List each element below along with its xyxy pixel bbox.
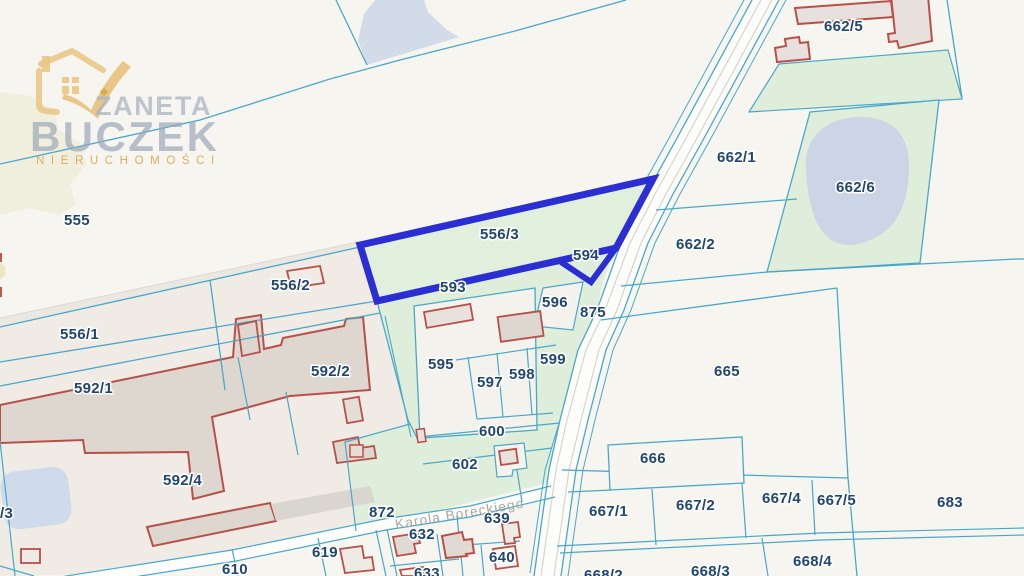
svg-text:/3: /3 [0, 505, 13, 522]
svg-text:667/5: 667/5 [817, 492, 856, 509]
svg-text:NIERUCHOMOŚCI: NIERUCHOMOŚCI [36, 154, 221, 167]
svg-text:602: 602 [452, 456, 478, 473]
svg-text:597: 597 [477, 374, 503, 391]
svg-text:667/2: 667/2 [676, 497, 715, 514]
svg-text:600: 600 [479, 423, 505, 440]
svg-text:875: 875 [580, 304, 606, 321]
svg-text:668/3: 668/3 [691, 563, 730, 576]
svg-text:598: 598 [509, 366, 535, 383]
svg-text:668/4: 668/4 [793, 553, 832, 570]
svg-text:668/2: 668/2 [584, 567, 623, 576]
svg-text:665: 665 [714, 363, 740, 380]
svg-text:BUCZEK: BUCZEK [30, 113, 219, 160]
svg-text:556/2: 556/2 [271, 277, 310, 294]
svg-text:599: 599 [540, 351, 566, 368]
svg-text:555: 555 [64, 212, 90, 229]
svg-text:662/5: 662/5 [824, 18, 863, 35]
svg-text:683: 683 [937, 494, 963, 511]
svg-text:592/2: 592/2 [311, 363, 350, 380]
svg-text:610: 610 [222, 561, 248, 576]
svg-text:872: 872 [369, 504, 395, 521]
svg-text:640: 640 [489, 549, 515, 566]
svg-text:667/1: 667/1 [589, 503, 628, 520]
svg-text:633: 633 [414, 565, 440, 576]
svg-text:666: 666 [640, 450, 666, 467]
svg-text:592/4: 592/4 [163, 472, 202, 489]
svg-text:595: 595 [428, 356, 454, 373]
svg-text:592/1: 592/1 [74, 380, 113, 397]
svg-text:556/1: 556/1 [60, 326, 99, 343]
svg-text:556/3: 556/3 [480, 226, 519, 243]
svg-text:662/1: 662/1 [717, 149, 756, 166]
svg-text:667/4: 667/4 [762, 490, 801, 507]
svg-text:593: 593 [440, 279, 466, 296]
svg-text:619: 619 [312, 544, 338, 561]
svg-text:662/6: 662/6 [836, 179, 875, 196]
svg-text:662/2: 662/2 [676, 236, 715, 253]
svg-text:594: 594 [573, 247, 599, 264]
svg-text:596: 596 [542, 294, 568, 311]
